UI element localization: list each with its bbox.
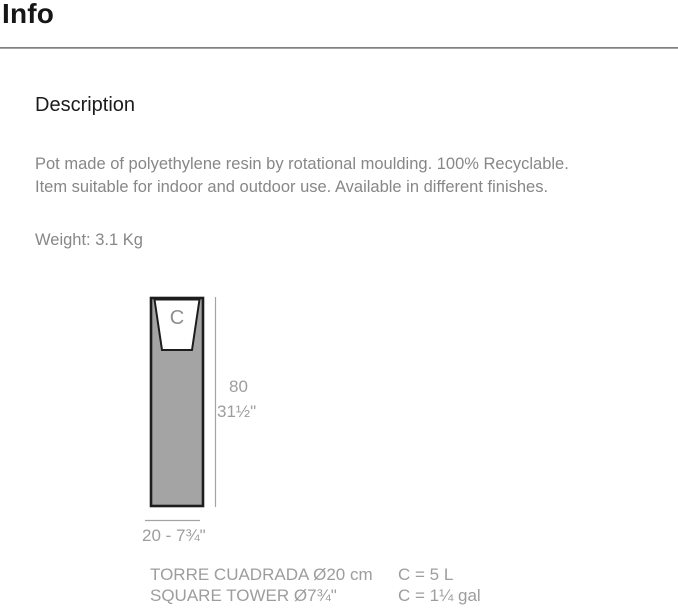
product-name-metric: TORRE CUADRADA Ø20 cm [150,564,373,585]
description-text-line-2: Item suitable for indoor and outdoor use… [35,176,548,199]
height-cm-label: 80 [229,377,248,397]
product-capacity-imperial: C = 1¼ gal [398,585,481,606]
height-inches-label: 31½" [217,402,256,422]
info-panel: Info Description Pot made of polyethylen… [0,0,678,610]
product-row-metric: TORRE CUADRADA Ø20 cm C = 5 L [150,564,570,585]
weight-text: Weight: 3.1 Kg [35,229,143,252]
header-divider [0,47,678,49]
product-capacity-metric: C = 5 L [398,564,453,585]
description-heading: Description [35,92,135,118]
product-name-imperial: SQUARE TOWER Ø7¾" [150,585,337,606]
cavity-letter: C [170,307,184,329]
page-title: Info [2,0,54,32]
width-label: 20 - 7¾" [142,526,206,546]
description-text-line-1: Pot made of polyethylene resin by rotati… [35,153,569,176]
product-row-imperial: SQUARE TOWER Ø7¾" C = 1¼ gal [150,585,570,606]
